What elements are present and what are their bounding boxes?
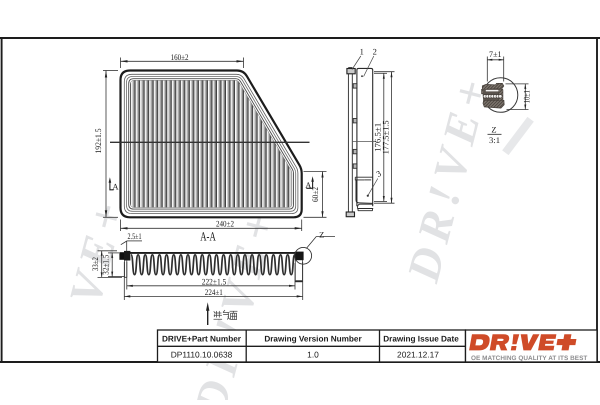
- svg-text:2.5±1: 2.5±1: [128, 231, 142, 241]
- svg-text:33±2: 33±2: [90, 257, 100, 271]
- svg-text:DP1110.10.0638: DP1110.10.0638: [171, 349, 233, 359]
- svg-text:Z: Z: [491, 125, 496, 135]
- svg-text:Drawing Issue Date: Drawing Issue Date: [383, 335, 459, 344]
- svg-text:2: 2: [373, 47, 377, 57]
- svg-text:10±1: 10±1: [521, 90, 531, 103]
- svg-text:160±2: 160±2: [171, 52, 189, 62]
- svg-text:177.5±1.5: 177.5±1.5: [381, 120, 391, 154]
- svg-text:A: A: [305, 180, 312, 190]
- svg-text:60±2: 60±2: [310, 187, 320, 202]
- svg-text:DRIVE+Part Number: DRIVE+Part Number: [162, 335, 242, 344]
- svg-text:1.0: 1.0: [307, 349, 319, 359]
- svg-text:A-A: A-A: [200, 230, 216, 244]
- svg-text:2021.12.17: 2021.12.17: [397, 349, 439, 359]
- svg-text:OE MATCHING QUALITY AT ITS BES: OE MATCHING QUALITY AT ITS BEST: [471, 355, 587, 362]
- svg-text:222±1.5: 222±1.5: [202, 276, 227, 286]
- svg-text:240±2: 240±2: [216, 218, 234, 228]
- svg-text:3:1: 3:1: [489, 135, 500, 145]
- svg-text:A: A: [112, 181, 119, 191]
- svg-text:192±1.5: 192±1.5: [93, 129, 103, 154]
- svg-text:32±1.5: 32±1.5: [100, 255, 110, 275]
- svg-text:1: 1: [360, 47, 364, 57]
- svg-text:Drawing Version Number: Drawing Version Number: [264, 335, 362, 344]
- svg-text:224±1: 224±1: [205, 287, 223, 297]
- svg-text:7±1: 7±1: [489, 49, 502, 59]
- svg-text:Z: Z: [319, 229, 324, 239]
